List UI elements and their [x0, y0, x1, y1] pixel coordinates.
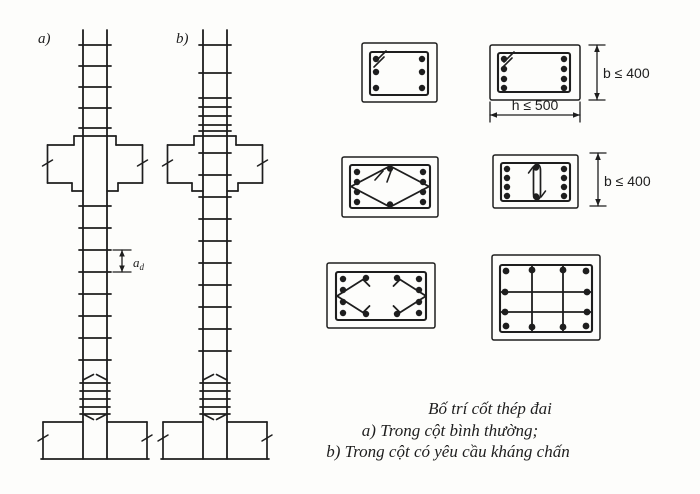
- section-diamond-tie: [342, 157, 438, 217]
- caption-line-a: a) Trong cột bình thường;: [362, 421, 538, 440]
- rebar-dot: [561, 56, 567, 62]
- rebar-dot: [420, 179, 426, 185]
- rebar-dot: [504, 175, 510, 181]
- spacing-subscript: d: [140, 262, 145, 272]
- rebar-dot: [561, 193, 567, 199]
- arrowhead: [595, 199, 601, 206]
- rebar-dot: [501, 76, 507, 82]
- section-small-single-hoop: [362, 43, 437, 102]
- label-column-a: a): [38, 31, 51, 47]
- rebar-dot: [529, 324, 536, 331]
- arrowhead: [573, 112, 580, 118]
- stirrup-hook: [97, 375, 108, 381]
- arrowhead: [119, 266, 125, 273]
- rebar-dot: [584, 309, 591, 316]
- rebar-dot: [502, 309, 509, 316]
- arrowhead: [594, 93, 600, 100]
- dimension-b-top-label: b ≤ 400: [603, 65, 650, 81]
- dimension-b-middle-label: b ≤ 400: [604, 173, 651, 189]
- rebar-dot: [583, 268, 590, 275]
- caption-line-b: b) Trong cột có yêu cầu kháng chấn: [326, 442, 569, 461]
- label-column-b: b): [176, 31, 189, 47]
- rebar-dot: [354, 169, 360, 175]
- rebar-dot: [420, 189, 426, 195]
- reinforcement-diagram-canvas: a) b) ad b ≤ 400 h ≤ 500 b ≤ 400 Bố trí …: [0, 0, 700, 494]
- rebar-dot: [529, 267, 536, 274]
- rebar-dot: [416, 276, 422, 282]
- rebar-dot: [419, 69, 425, 75]
- rebar-dot: [387, 165, 393, 171]
- hook-tick: [387, 171, 391, 182]
- rebar-dot: [354, 199, 360, 205]
- rebar-dot: [416, 310, 422, 316]
- rebar-dot: [387, 201, 393, 207]
- figure-caption: Bố trí cốt thép đai a) Trong cột bình th…: [326, 399, 569, 461]
- rebar-dot: [420, 169, 426, 175]
- rebar-dot: [584, 289, 591, 296]
- rebar-dot: [560, 267, 567, 274]
- dimension-b-middle: b ≤ 400: [590, 153, 651, 206]
- rebar-dot: [560, 324, 567, 331]
- stirrup-hook: [83, 375, 94, 381]
- section-grid-overlapping-hoops: [492, 255, 600, 340]
- arrowhead: [119, 250, 125, 257]
- rebar-dot: [561, 76, 567, 82]
- cross-tie: [400, 296, 426, 313]
- stirrup-hoop: [498, 53, 570, 92]
- rebar-dot: [340, 310, 346, 316]
- rebar-dot: [504, 184, 510, 190]
- rebar-dot: [561, 184, 567, 190]
- rebar-dot: [503, 268, 510, 275]
- rebar-dot: [373, 69, 379, 75]
- stirrup-spacing-label: ad: [133, 255, 145, 272]
- arrowhead: [594, 45, 600, 52]
- section-large-single-hoop: [490, 45, 580, 100]
- rebar-dot: [419, 56, 425, 62]
- section-vertical-crosstie: [493, 155, 578, 208]
- rebar-dot: [354, 189, 360, 195]
- cross-tie: [400, 280, 426, 297]
- dimension-b-top: b ≤ 400: [589, 45, 650, 100]
- rebar-dot: [583, 323, 590, 330]
- rebar-dot: [504, 193, 510, 199]
- rebar-dot: [561, 66, 567, 72]
- arrowhead: [490, 112, 497, 118]
- rebar-dot: [503, 323, 510, 330]
- rebar-dot: [561, 85, 567, 91]
- stirrup-hook: [217, 375, 228, 381]
- rebar-dot: [340, 276, 346, 282]
- stirrup-hook: [203, 375, 214, 381]
- dimension-h-label: h ≤ 500: [512, 97, 559, 113]
- hook-tick: [541, 191, 546, 197]
- caption-title: Bố trí cốt thép đai: [428, 399, 552, 418]
- stirrup-hoop: [336, 272, 426, 320]
- rebar-dot: [354, 179, 360, 185]
- rebar-dot: [420, 199, 426, 205]
- hook-tick: [529, 167, 534, 173]
- rebar-dot: [502, 289, 509, 296]
- column-a-elevation: [38, 30, 152, 459]
- section-diagonal-crossties: [327, 263, 435, 328]
- column-b-elevation: [158, 30, 272, 459]
- rebar-dot: [561, 166, 567, 172]
- rebar-dot: [501, 85, 507, 91]
- rebar-dot: [373, 85, 379, 91]
- arrowhead: [595, 153, 601, 160]
- figure-stirrup-arrangement: a) b) ad b ≤ 400 h ≤ 500 b ≤ 400 Bố trí …: [0, 0, 700, 494]
- stirrup-spacing-dimension: ad: [113, 250, 145, 272]
- rebar-dot: [419, 85, 425, 91]
- rebar-dot: [504, 166, 510, 172]
- rebar-dot: [561, 175, 567, 181]
- stirrup-hoop: [500, 265, 592, 332]
